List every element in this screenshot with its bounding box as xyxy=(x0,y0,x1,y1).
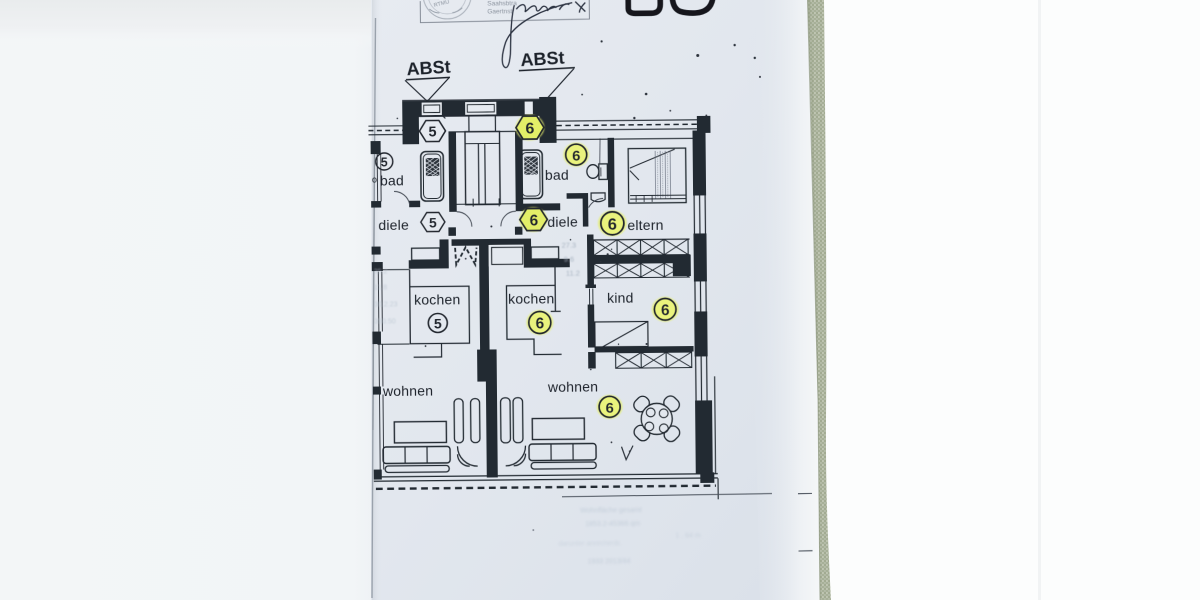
svg-text:5: 5 xyxy=(428,124,436,140)
svg-text:darunter anrechenb.: darunter anrechenb. xyxy=(558,540,621,548)
svg-text:9.6: 9.6 xyxy=(564,255,575,264)
svg-text:wohnen: wohnen xyxy=(547,378,598,394)
svg-text:Saahsbtra: Saahsbtra xyxy=(487,0,517,7)
svg-text:11.2: 11.2 xyxy=(566,269,580,278)
svg-text:bad: bad xyxy=(380,172,404,188)
svg-text:diele: diele xyxy=(547,214,578,230)
svg-text:ABSt: ABSt xyxy=(520,47,565,70)
svg-text:5: 5 xyxy=(381,155,388,169)
svg-text:6: 6 xyxy=(605,400,614,417)
svg-text:6: 6 xyxy=(661,302,670,319)
svg-text:35.2: 35.2 xyxy=(374,268,388,275)
svg-text:6: 6 xyxy=(608,216,617,234)
svg-text:kochen: kochen xyxy=(508,290,555,306)
svg-text:bad: bad xyxy=(545,167,569,183)
svg-text:o: o xyxy=(372,175,377,185)
svg-text:wohnen: wohnen xyxy=(382,383,433,399)
svg-text:6: 6 xyxy=(535,315,544,332)
svg-text:ABSt: ABSt xyxy=(406,57,451,80)
svg-text:6: 6 xyxy=(525,121,534,138)
svg-text:27.3: 27.3 xyxy=(562,241,577,250)
svg-text:350.50: 350.50 xyxy=(374,318,396,325)
svg-text:Wohnfläche gesamt: Wohnfläche gesamt xyxy=(580,507,642,515)
svg-text:5: 5 xyxy=(434,315,442,331)
svg-text:30.2.23: 30.2.23 xyxy=(374,301,398,308)
svg-text:11.8: 11.8 xyxy=(374,284,387,291)
svg-text:eltern: eltern xyxy=(627,217,663,233)
svg-text:1933 2013/44: 1933 2013/44 xyxy=(588,558,631,565)
svg-text:5: 5 xyxy=(429,214,437,230)
svg-text:kind: kind xyxy=(607,290,634,306)
svg-text:6: 6 xyxy=(529,213,538,230)
svg-text:1 . 64 m: 1 . 64 m xyxy=(675,532,701,539)
svg-text:6: 6 xyxy=(572,148,581,165)
svg-text:diele: diele xyxy=(378,217,409,233)
svg-text:kochen: kochen xyxy=(414,291,461,307)
svg-text:1853.2-45366 qm: 1853.2-45366 qm xyxy=(585,521,640,529)
svg-text:Gaertnstr: Gaertnstr xyxy=(487,8,515,15)
